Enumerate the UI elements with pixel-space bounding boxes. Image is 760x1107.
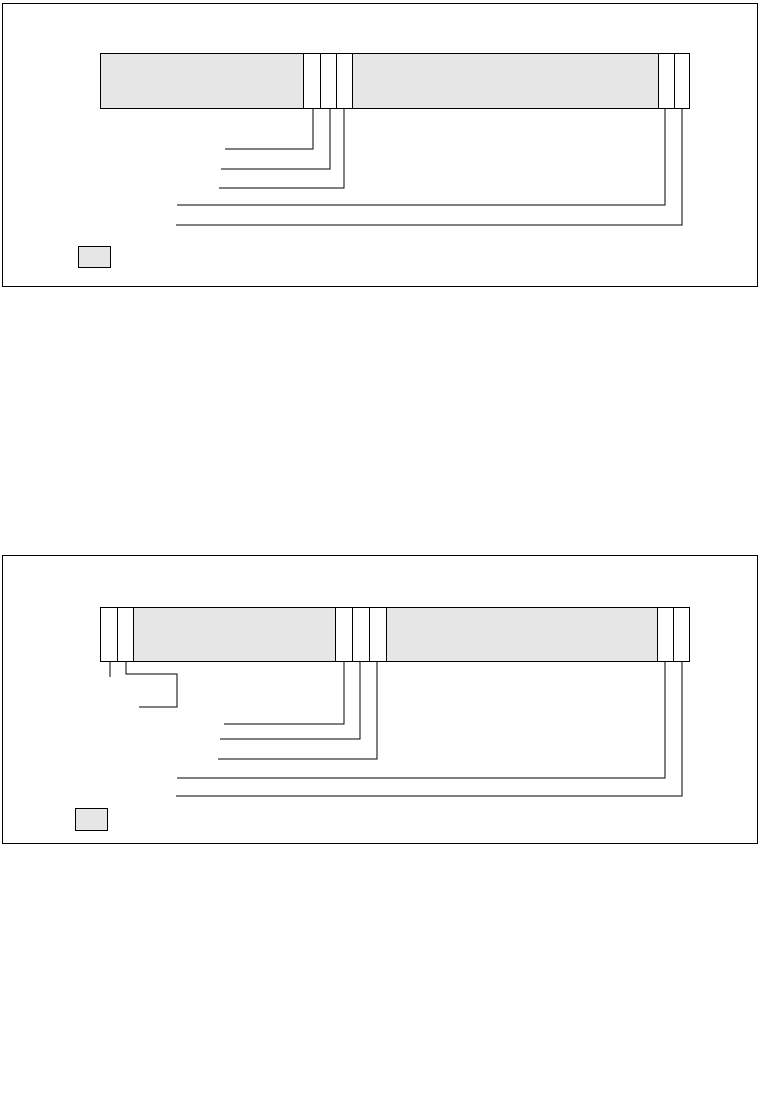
field-cell-empty bbox=[674, 54, 689, 108]
field-cell-filled bbox=[386, 608, 657, 661]
leader-line bbox=[225, 109, 313, 149]
leader-line bbox=[221, 109, 330, 169]
field-cell-filled bbox=[352, 54, 658, 108]
field-cell-empty bbox=[657, 608, 673, 661]
field-cell-empty bbox=[335, 608, 352, 661]
field-cell-filled bbox=[101, 54, 303, 108]
leader-line bbox=[220, 662, 360, 739]
leader-line bbox=[219, 109, 344, 188]
field-cell-empty bbox=[336, 54, 352, 108]
field-structure-figure-2 bbox=[2, 555, 758, 844]
leader-line bbox=[176, 109, 682, 225]
legend-swatch bbox=[78, 246, 111, 268]
field-cell-empty bbox=[320, 54, 336, 108]
leader-line bbox=[126, 662, 177, 707]
field-cell-empty bbox=[369, 608, 386, 661]
leader-lines bbox=[3, 556, 759, 845]
field-bar bbox=[100, 53, 690, 109]
leader-line bbox=[177, 662, 665, 778]
field-bar bbox=[100, 607, 690, 662]
field-structure-figure-1 bbox=[2, 3, 758, 287]
field-cell-empty bbox=[101, 608, 117, 661]
leader-lines bbox=[3, 4, 759, 288]
field-cell-empty bbox=[117, 608, 133, 661]
field-cell-empty bbox=[352, 608, 369, 661]
leader-line bbox=[176, 662, 682, 796]
field-cell-empty bbox=[673, 608, 689, 661]
leader-line bbox=[177, 109, 665, 205]
leader-line bbox=[224, 662, 344, 724]
field-cell-empty bbox=[658, 54, 674, 108]
document-page bbox=[0, 0, 760, 1107]
leader-line bbox=[218, 662, 377, 759]
legend-swatch bbox=[75, 808, 108, 831]
field-cell-empty bbox=[303, 54, 320, 108]
field-cell-filled bbox=[133, 608, 335, 661]
